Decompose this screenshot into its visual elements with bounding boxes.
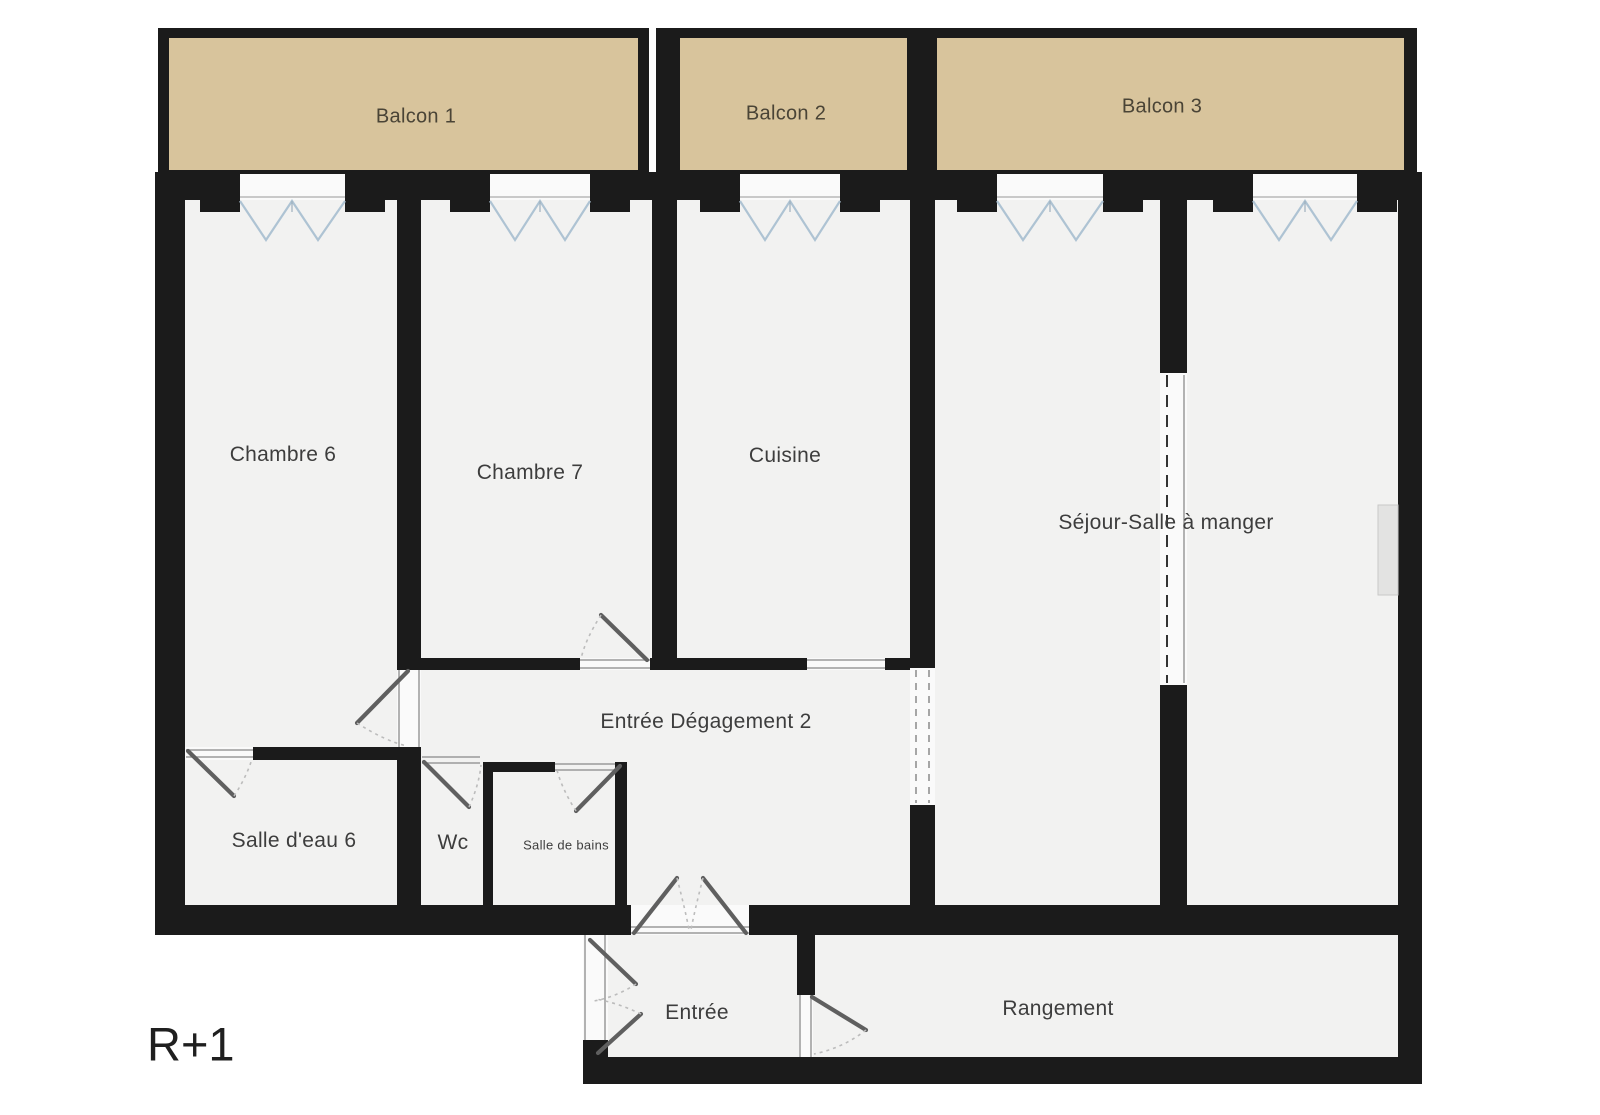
room-label-entree: Entrée — [665, 1001, 729, 1025]
sliding-door-gap-sejour — [910, 668, 935, 805]
wall-sdb-right — [615, 762, 627, 905]
room-label-salle-deau-6: Salle d'eau 6 — [232, 829, 357, 853]
main-floor-fill — [185, 200, 1398, 905]
floor-plan-drawing — [0, 0, 1600, 1115]
wall-chambre7-cuisine — [652, 200, 677, 670]
wall-sejour-divider-top — [1160, 198, 1187, 373]
balconies — [158, 28, 1417, 174]
room-label-chambre-7: Chambre 7 — [477, 461, 584, 485]
wall-salledeau-top — [253, 747, 397, 760]
wall-chambre6-chambre7 — [397, 200, 421, 670]
door-gap-chambre6 — [397, 670, 421, 747]
radiator — [1378, 505, 1398, 595]
room-label-balcon-1: Balcon 1 — [376, 106, 456, 129]
room-label-wc: Wc — [438, 831, 469, 855]
wall-salledeau-wc — [397, 747, 421, 905]
room-label-balcon-2: Balcon 2 — [746, 103, 826, 126]
floor-plan-page: Balcon 1 Balcon 2 Balcon 3 Chambre 6 Cha… — [0, 0, 1600, 1115]
wall-sdb-left — [483, 762, 493, 905]
wall-sdb-top — [483, 762, 555, 772]
room-label-cuisine: Cuisine — [749, 444, 821, 468]
room-label-balcon-3: Balcon 3 — [1122, 96, 1202, 119]
room-label-degagement: Entrée Dégagement 2 — [600, 710, 811, 734]
wall-chambre7-hall — [421, 658, 580, 670]
room-label-sejour: Séjour-Salle à manger — [1058, 511, 1273, 535]
room-label-rangement: Rangement — [1002, 997, 1113, 1021]
wall-cuisine-sejour — [910, 200, 935, 668]
double-door-gap-entree — [631, 905, 749, 935]
room-label-chambre-6: Chambre 6 — [230, 443, 337, 467]
extension-floor-fill — [608, 935, 1398, 1057]
floor-level-label: R+1 — [147, 1017, 235, 1072]
room-label-salle-de-bains: Salle de bains — [523, 838, 609, 853]
wall-sejour-divider-bottom — [1160, 685, 1187, 935]
wall-entree-rangement-stub — [797, 935, 815, 995]
